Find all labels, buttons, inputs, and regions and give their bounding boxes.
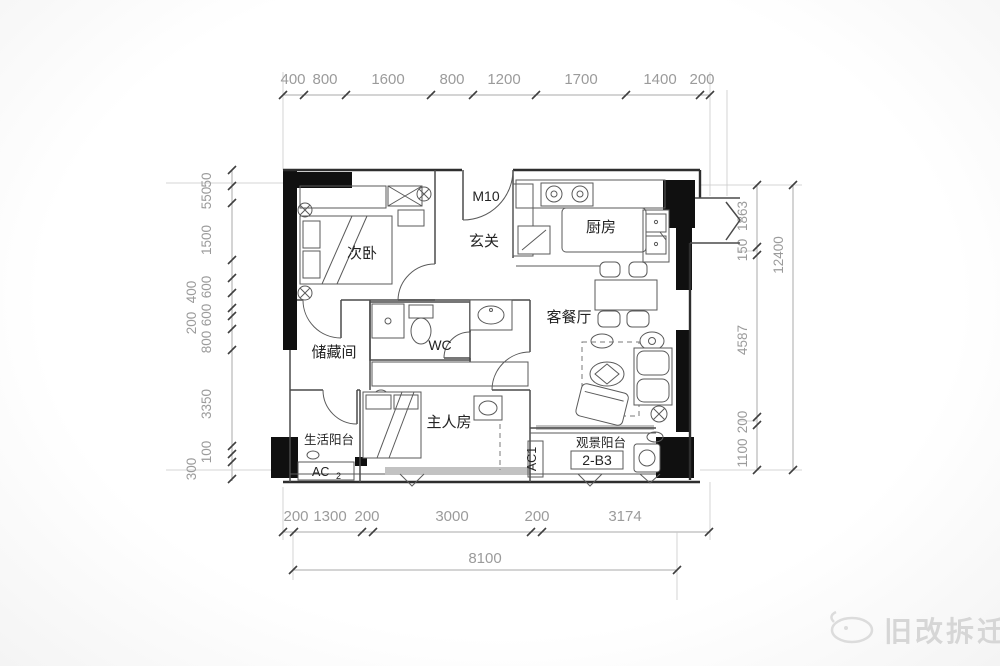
wardrobe bbox=[372, 362, 528, 386]
dining-table bbox=[595, 262, 657, 327]
kitchen-sink-icon bbox=[643, 210, 669, 262]
room-storage: 储藏间 bbox=[311, 344, 356, 361]
unit-label: 2-B3 bbox=[582, 452, 612, 468]
dimension-label: 4587 bbox=[735, 325, 750, 355]
ac-label: AC1 bbox=[525, 447, 539, 471]
room-view-balcony: 观景阳台 2-B3 AC1 bbox=[525, 432, 663, 477]
dimension-label: 1100 bbox=[735, 438, 750, 467]
ac-platform-2: AC 2 bbox=[298, 462, 354, 481]
ac-platform-1: AC1 bbox=[525, 441, 543, 477]
floor-drain-icon bbox=[298, 286, 312, 300]
room-label-master-bedroom: 主人房 bbox=[426, 414, 471, 431]
dimension-label: 800 bbox=[199, 331, 214, 354]
dimension-label: 200 bbox=[354, 508, 379, 525]
floor-plan-page: 400 800 1600 800 1200 1700 1400 200 50 5… bbox=[0, 0, 1000, 666]
dimension-label: 3000 bbox=[435, 508, 468, 525]
dimension-label: 1500 bbox=[199, 225, 214, 255]
dimension-label: 600 bbox=[199, 304, 214, 327]
drain-icon bbox=[307, 451, 319, 459]
dimension-label: 3350 bbox=[199, 389, 214, 419]
unit-tag: 2-B3 bbox=[571, 451, 623, 469]
bedside-table bbox=[474, 396, 502, 420]
dimension-label-overall: 8100 bbox=[468, 550, 501, 567]
dimension-label: 1700 bbox=[564, 71, 597, 88]
room-second-bedroom: 次卧 bbox=[298, 186, 431, 300]
floor-drain-icon bbox=[651, 406, 667, 422]
floor-lamp-icon bbox=[640, 332, 664, 350]
ac-label-num: 2 bbox=[336, 471, 341, 481]
washing-machine-icon bbox=[634, 444, 660, 472]
dimension-chain-right: 1863 150 4587 200 1100 12400 bbox=[700, 181, 802, 474]
coffee-table bbox=[590, 362, 624, 386]
room-master-bedroom: 主人房 bbox=[363, 362, 528, 470]
storage-door bbox=[303, 300, 341, 338]
room-label-view-balcony: 观景阳台 bbox=[576, 435, 626, 450]
room-label-foyer: 玄关 bbox=[469, 233, 499, 250]
room-kitchen: 厨房 bbox=[516, 180, 669, 266]
fridge-icon bbox=[518, 226, 550, 254]
dining-chair bbox=[600, 262, 620, 277]
wardrobe bbox=[300, 186, 386, 208]
dimension-label: 400 bbox=[280, 71, 305, 88]
watermark: 旧改拆迁 bbox=[831, 612, 1000, 647]
room-label-service-balcony: 生活阳台 bbox=[304, 432, 354, 447]
dimension-label: 200 bbox=[184, 312, 199, 335]
dimension-label: 1600 bbox=[371, 71, 404, 88]
sofa bbox=[634, 348, 672, 405]
dimension-label: 200 bbox=[524, 508, 549, 525]
dimension-label: 1400 bbox=[643, 71, 676, 88]
dimension-label: 150 bbox=[735, 239, 750, 262]
window-chevron-icon bbox=[578, 474, 602, 486]
dining-chair bbox=[598, 311, 620, 327]
shower-area bbox=[372, 304, 404, 338]
dimension-label: 50 bbox=[199, 172, 214, 187]
room-label-kitchen: 厨房 bbox=[586, 219, 616, 236]
dimension-label: 200 bbox=[283, 508, 308, 525]
dimension-label: 1200 bbox=[487, 71, 520, 88]
master-bedroom-door bbox=[492, 352, 530, 390]
room-label-storage: 储藏间 bbox=[311, 344, 356, 361]
dimension-label: 3174 bbox=[608, 508, 641, 525]
stove-icon bbox=[541, 183, 593, 206]
dimension-label-overall: 12400 bbox=[771, 236, 786, 274]
dimension-label: 100 bbox=[199, 441, 214, 464]
dimension-chain-bottom: 200 1300 200 3000 200 3174 8100 bbox=[279, 482, 713, 600]
armchair bbox=[575, 383, 630, 427]
watermark-logo-icon bbox=[831, 612, 872, 642]
dimension-label: 300 bbox=[184, 458, 199, 481]
room-wc: WC bbox=[370, 300, 512, 360]
floor-drain-icon bbox=[298, 203, 312, 217]
dimension-label: 800 bbox=[312, 71, 337, 88]
ac-label: AC bbox=[312, 465, 329, 479]
room-label-living-dining: 客餐厅 bbox=[546, 309, 591, 326]
room-living-dining: 客餐厅 bbox=[546, 262, 672, 426]
dimension-label: 600 bbox=[199, 276, 214, 299]
washbasin-icon bbox=[470, 300, 512, 330]
dining-chair bbox=[627, 311, 649, 327]
room-label-second-bedroom: 次卧 bbox=[347, 245, 377, 262]
dimension-chain-left: 50 550 1500 600 400 600 200 800 3350 100… bbox=[166, 166, 283, 483]
side-table bbox=[398, 210, 424, 226]
dimension-label: 200 bbox=[735, 411, 750, 434]
dimension-label: 800 bbox=[439, 71, 464, 88]
dimension-label: 550 bbox=[199, 187, 214, 210]
decor-plate bbox=[591, 334, 613, 348]
floor-plan-canvas: 400 800 1600 800 1200 1700 1400 200 50 5… bbox=[0, 0, 1000, 666]
dining-chair bbox=[629, 262, 647, 277]
dimension-label: 1300 bbox=[313, 508, 346, 525]
dimension-label: 400 bbox=[184, 281, 199, 304]
window-chevron-icon bbox=[400, 474, 424, 486]
bed-double bbox=[363, 392, 421, 458]
service-balcony-door bbox=[323, 390, 357, 424]
watermark-text: 旧改拆迁 bbox=[884, 616, 1000, 647]
second-bedroom-door bbox=[398, 264, 435, 300]
room-label-wc: WC bbox=[428, 337, 451, 353]
dimension-label: 200 bbox=[689, 71, 714, 88]
door-tag: M10 bbox=[472, 188, 499, 204]
